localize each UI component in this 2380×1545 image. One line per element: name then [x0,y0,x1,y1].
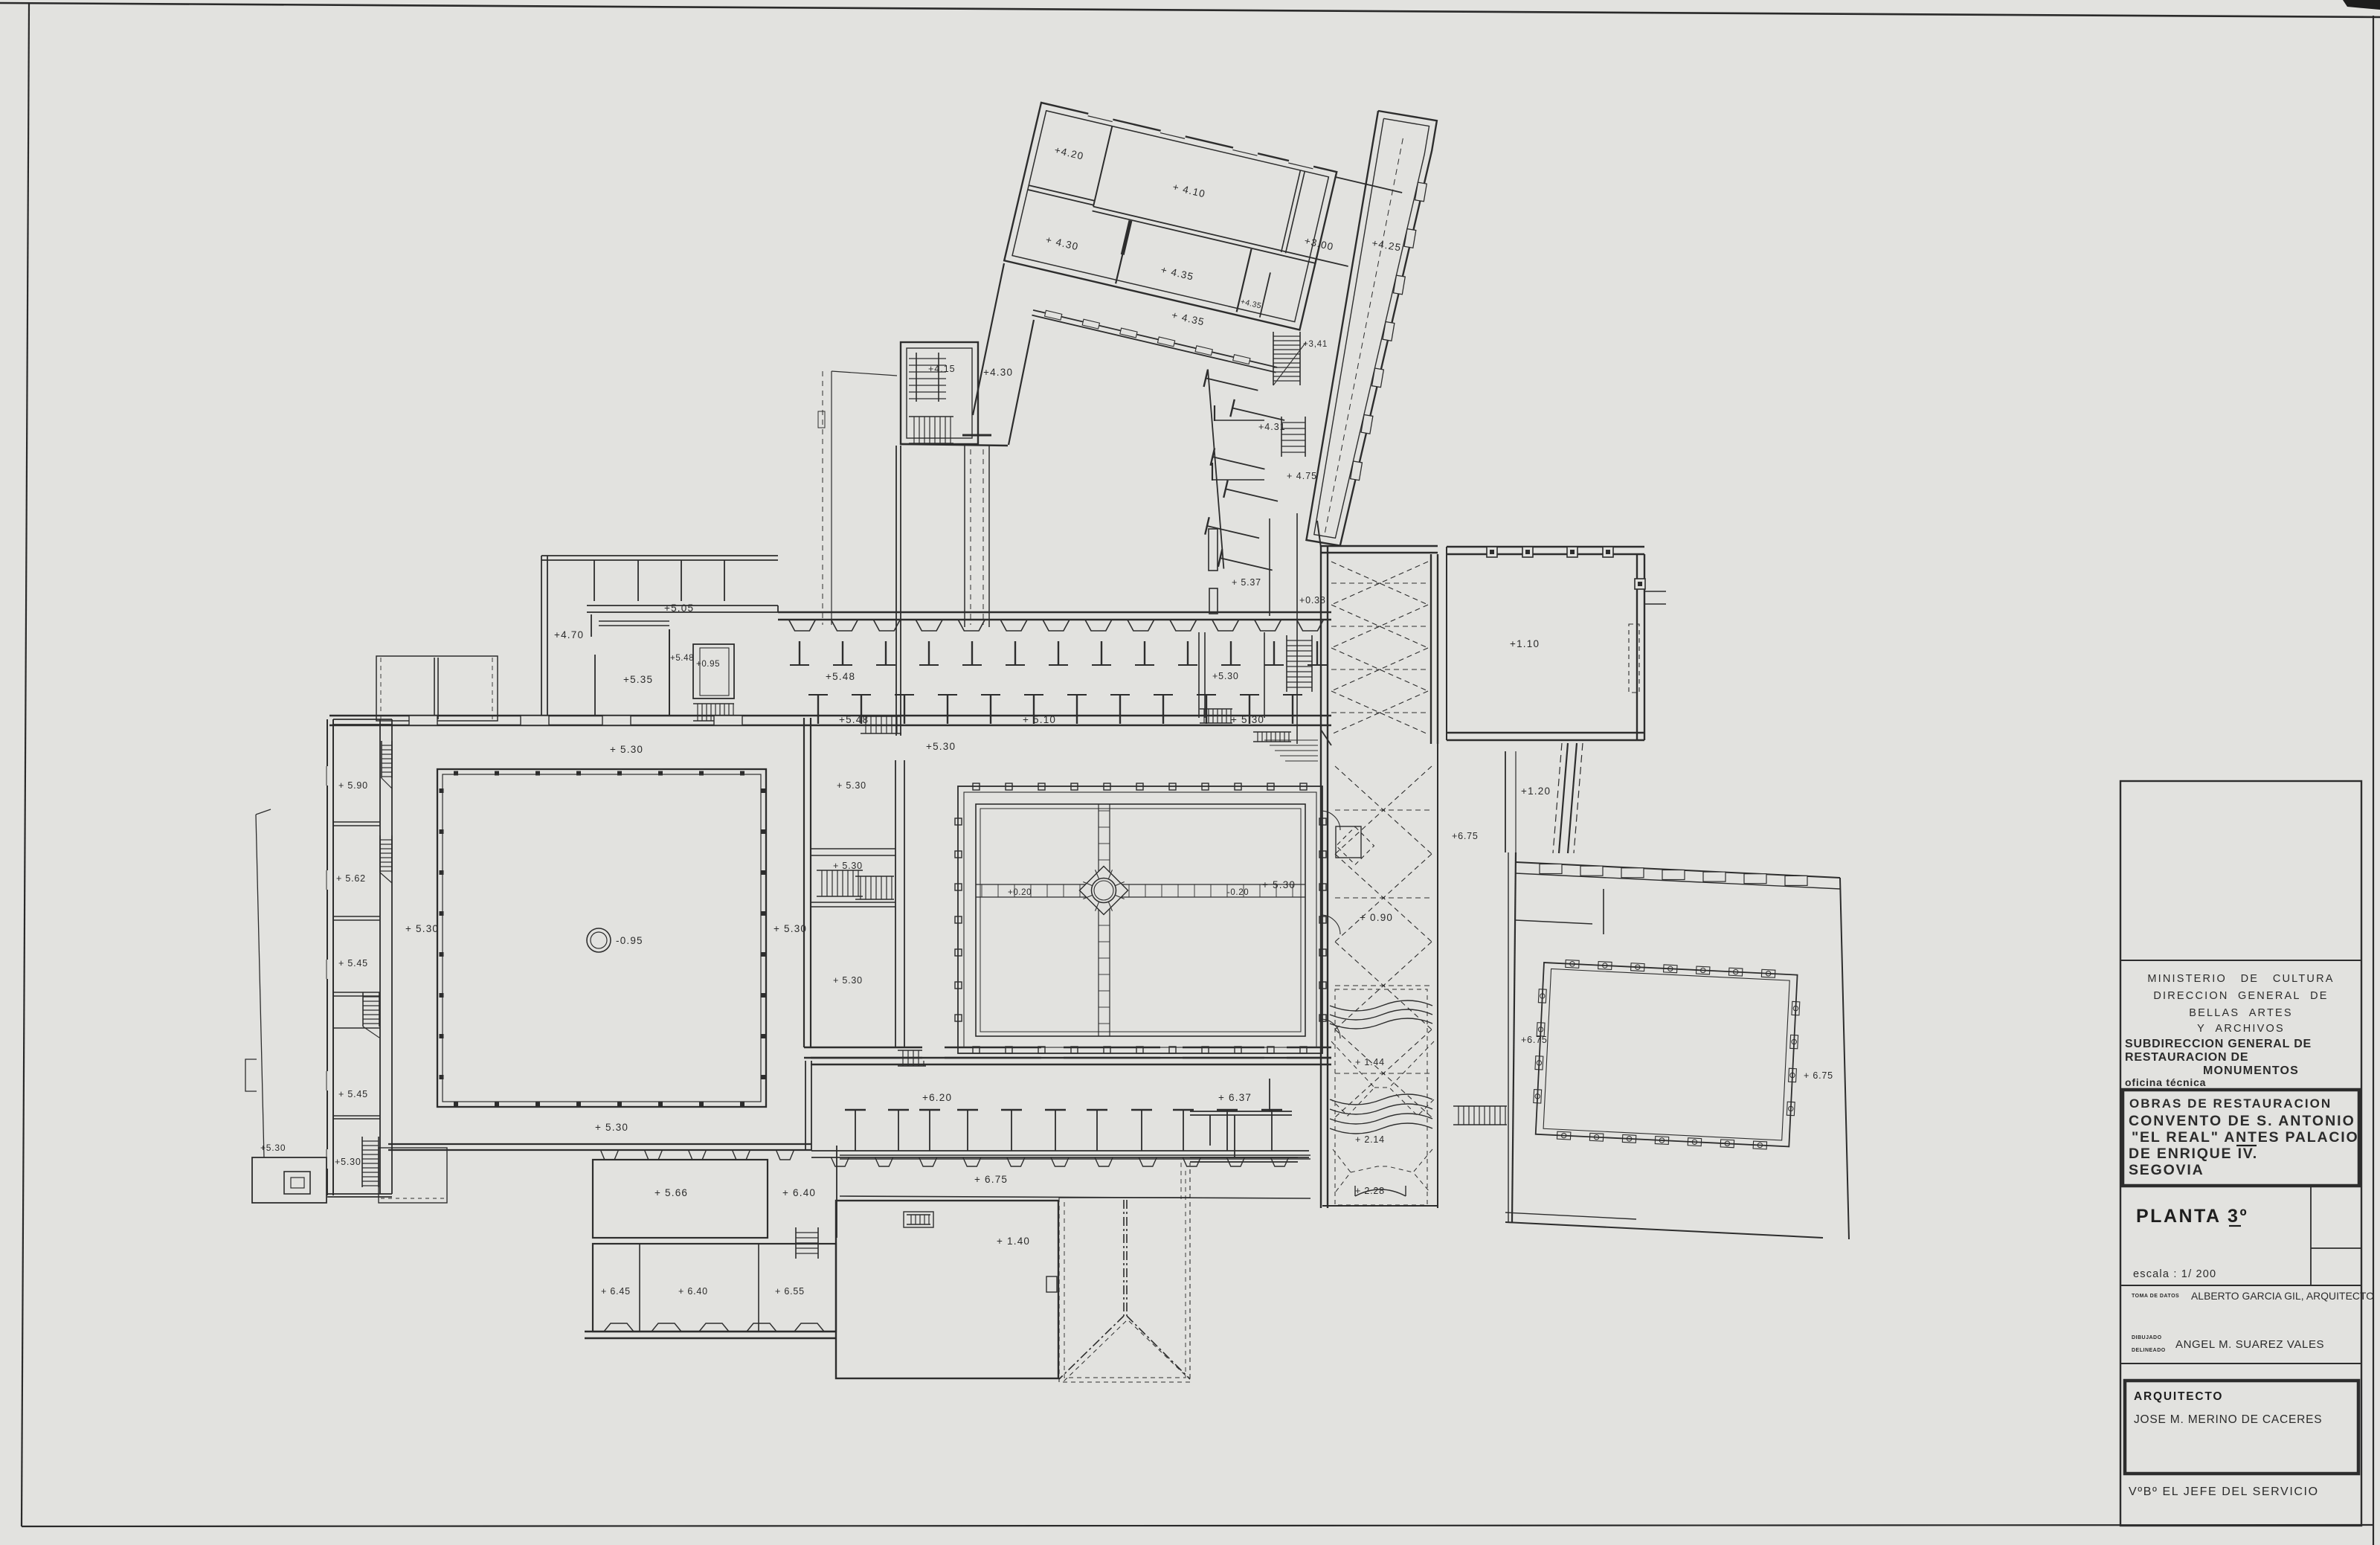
svg-text:+6.20: +6.20 [922,1092,952,1103]
svg-text:+ 5.66: + 5.66 [654,1187,688,1198]
svg-text:ANGEL M. SUAREZ VALES: ANGEL M. SUAREZ VALES [2175,1338,2324,1351]
svg-text:Y ARCHIVOS: Y ARCHIVOS [2197,1023,2285,1035]
svg-text:ALBERTO GARCIA GIL, ARQUITECTO: ALBERTO GARCIA GIL, ARQUITECTO [2191,1291,2374,1302]
svg-text:+ 5.30: + 5.30 [595,1122,628,1133]
svg-text:+ 1.40: + 1.40 [997,1236,1030,1247]
svg-text:MONUMENTOS: MONUMENTOS [2203,1064,2299,1077]
svg-text:+ 6.45: + 6.45 [601,1286,631,1297]
svg-text:-0.95: -0.95 [616,935,643,946]
svg-text:PLANTA 3º: PLANTA 3º [2136,1206,2248,1227]
svg-text:+ 6.40: + 6.40 [782,1187,816,1198]
svg-text:VºBº EL JEFE DEL SERVICIO: VºBº EL JEFE DEL SERVICIO [2129,1485,2319,1498]
svg-text:+4.70: +4.70 [554,629,584,640]
svg-text:+0.20: +0.20 [1008,888,1032,897]
svg-text:+ 5.30: + 5.30 [1231,714,1264,725]
svg-text:+ 5.62: + 5.62 [336,873,366,884]
svg-text:BELLAS ARTES: BELLAS ARTES [2189,1007,2293,1019]
svg-text:+ 6.40: + 6.40 [678,1286,708,1297]
svg-text:+5.05: +5.05 [664,603,694,614]
svg-text:SEGOVIA: SEGOVIA [2129,1162,2204,1178]
svg-text:+6.75: +6.75 [1521,1035,1548,1045]
svg-text:DIRECCION GENERAL DE: DIRECCION GENERAL DE [2153,990,2328,1002]
svg-text:+5.35: +5.35 [623,674,653,685]
svg-text:+ 5.10: + 5.10 [1023,714,1056,725]
svg-text:+0.38: +0.38 [1299,595,1326,606]
svg-text:escala : 1/ 200: escala : 1/ 200 [2133,1268,2216,1280]
svg-text:+ 6.75: + 6.75 [974,1174,1008,1185]
svg-text:+5.48: +5.48 [670,654,694,663]
svg-text:DE ENRIQUE IV.: DE ENRIQUE IV. [2129,1146,2258,1162]
svg-text:"EL REAL" ANTES PALACIO: "EL REAL" ANTES PALACIO [2132,1129,2358,1146]
svg-text:+ 5.30: + 5.30 [833,861,863,871]
svg-text:+ 5.37: + 5.37 [1232,577,1261,588]
svg-text:+3,41: +3,41 [1303,340,1328,349]
svg-text:SUBDIRECCION GENERAL DE: SUBDIRECCION GENERAL DE [2125,1038,2312,1050]
svg-text:JOSE M. MERINO DE CACERES: JOSE M. MERINO DE CACERES [2134,1413,2322,1426]
svg-text:+5.48: +5.48 [839,714,869,725]
svg-text:+ 5.30: + 5.30 [1262,879,1296,890]
svg-text:RESTAURACION DE: RESTAURACION DE [2125,1051,2248,1064]
svg-text:+ 6.75: + 6.75 [1804,1070,1833,1081]
svg-text:+ 2.14: + 2.14 [1355,1134,1385,1145]
svg-text:+ 5.45: + 5.45 [338,958,368,969]
svg-text:+ 5.30: + 5.30 [833,975,863,986]
svg-text:+ 5.90: + 5.90 [338,780,368,791]
svg-text:+5.48: +5.48 [826,671,855,682]
svg-text:+4.30: +4.30 [983,367,1013,378]
svg-text:DELINEADO: DELINEADO [2132,1348,2166,1353]
svg-text:oficina técnica: oficina técnica [2125,1076,2206,1088]
svg-text:OBRAS DE RESTAURACION: OBRAS DE RESTAURACION [2129,1096,2332,1111]
svg-text:DIBUJADO: DIBUJADO [2132,1335,2162,1340]
svg-text:+0.95: +0.95 [696,660,720,669]
svg-text:+ 0.90: + 0.90 [1360,912,1393,923]
svg-text:+6.75: +6.75 [1452,831,1479,841]
svg-text:+ 1.44: + 1.44 [1355,1057,1385,1067]
svg-text:+5.30: +5.30 [335,1157,361,1167]
svg-text:+1.20: +1.20 [1521,786,1551,797]
svg-text:+ 5.30: + 5.30 [837,780,866,791]
svg-text:-0.20: -0.20 [1227,888,1249,897]
svg-text:+ 5.30: + 5.30 [773,923,807,934]
svg-text:+ 4.75: + 4.75 [1287,471,1317,481]
svg-text:+ 5.30: + 5.30 [610,744,643,755]
svg-text:+ 2.28: + 2.28 [1355,1186,1385,1196]
svg-text:+5.30: +5.30 [1212,671,1239,681]
svg-text:ARQUITECTO: ARQUITECTO [2134,1390,2223,1403]
svg-text:+ 5.45: + 5.45 [338,1089,368,1099]
svg-text:CONVENTO DE S. ANTONIO: CONVENTO DE S. ANTONIO [2129,1113,2355,1129]
svg-text:+ 6.55: + 6.55 [775,1286,805,1297]
svg-text:+5.30: +5.30 [260,1143,286,1153]
svg-text:+5.30: +5.30 [926,741,956,752]
svg-text:MINISTERIO DE CULTURA: MINISTERIO DE CULTURA [2147,973,2334,985]
svg-text:TOMA DE DATOS: TOMA DE DATOS [2132,1294,2179,1299]
svg-text:+ 5.30: + 5.30 [405,923,439,934]
svg-text:+1.10: +1.10 [1510,638,1540,649]
svg-text:+ 6.37: + 6.37 [1218,1092,1252,1103]
